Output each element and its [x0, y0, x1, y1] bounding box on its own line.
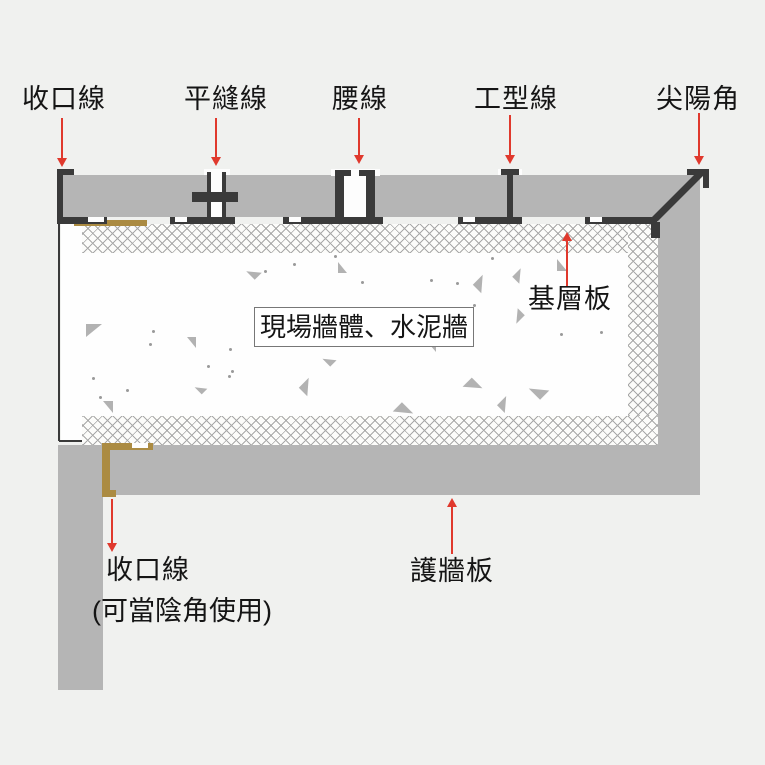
- existing-wall-left: [58, 445, 103, 690]
- label-site-wall: 現場牆體、水泥牆: [254, 307, 474, 347]
- arrow-closing-line-top: [61, 118, 63, 158]
- strip-notch-4: [463, 217, 475, 222]
- label-ibeam-line: 工型線: [474, 84, 558, 115]
- gold-closing-line-web: [102, 443, 110, 497]
- arrow-sharp-corner: [698, 113, 700, 156]
- label-flat-seam-line: 平縫線: [184, 84, 268, 115]
- arrow-ibeam-line: [509, 115, 511, 155]
- label-sharp-corner: 尖陽角: [656, 84, 740, 115]
- ibeam-profile-stem: [507, 175, 513, 217]
- seam-profile-crossbar: [192, 192, 238, 202]
- arrow-base-layer: [566, 241, 568, 286]
- arrow-wall-guard: [451, 507, 453, 554]
- strip-notch-3: [289, 217, 301, 222]
- waist-profile-bar-left: [335, 170, 344, 217]
- label-closing-line-top: 收口線: [22, 84, 106, 115]
- label-base-layer-board: 基層板: [528, 284, 612, 315]
- gold-closing-line-notch: [132, 443, 148, 448]
- base-layer-hatch-bottom: [82, 416, 658, 445]
- strip-notch-5: [590, 217, 602, 222]
- concrete-left-border: [58, 220, 60, 441]
- closing-line-profile-web: [57, 169, 63, 224]
- label-closing-line-note: (可當陰角使用): [92, 596, 272, 627]
- corner-profile-endcap: [651, 222, 660, 238]
- gold-closing-line-bottom-flange: [102, 490, 116, 497]
- panel-bottom-band: [103, 445, 700, 495]
- strip-notch-2: [175, 217, 187, 222]
- arrow-waist-line: [358, 118, 360, 155]
- waist-profile-lip-right: [359, 170, 375, 176]
- label-closing-line-bottom: 收口線: [106, 555, 190, 586]
- arrow-flat-seam-line: [215, 118, 217, 157]
- base-layer-hatch-right: [628, 224, 658, 445]
- diagram-canvas: 收口線 平縫線 腰線 工型線 尖陽角 基層板 現場牆體、水泥牆 護牆板 收口線 …: [0, 0, 765, 765]
- concrete-bottom-border: [59, 440, 84, 442]
- arrow-closing-line-bottom: [111, 499, 113, 543]
- waist-profile-lip-left: [335, 170, 351, 176]
- strip-notch-1: [88, 217, 104, 222]
- panel-top-band: [63, 175, 700, 217]
- waist-profile-bar-right: [366, 170, 375, 217]
- label-wall-guard-board: 護牆板: [410, 556, 494, 587]
- waist-profile-slot: [344, 176, 366, 217]
- label-waist-line: 腰線: [332, 84, 388, 115]
